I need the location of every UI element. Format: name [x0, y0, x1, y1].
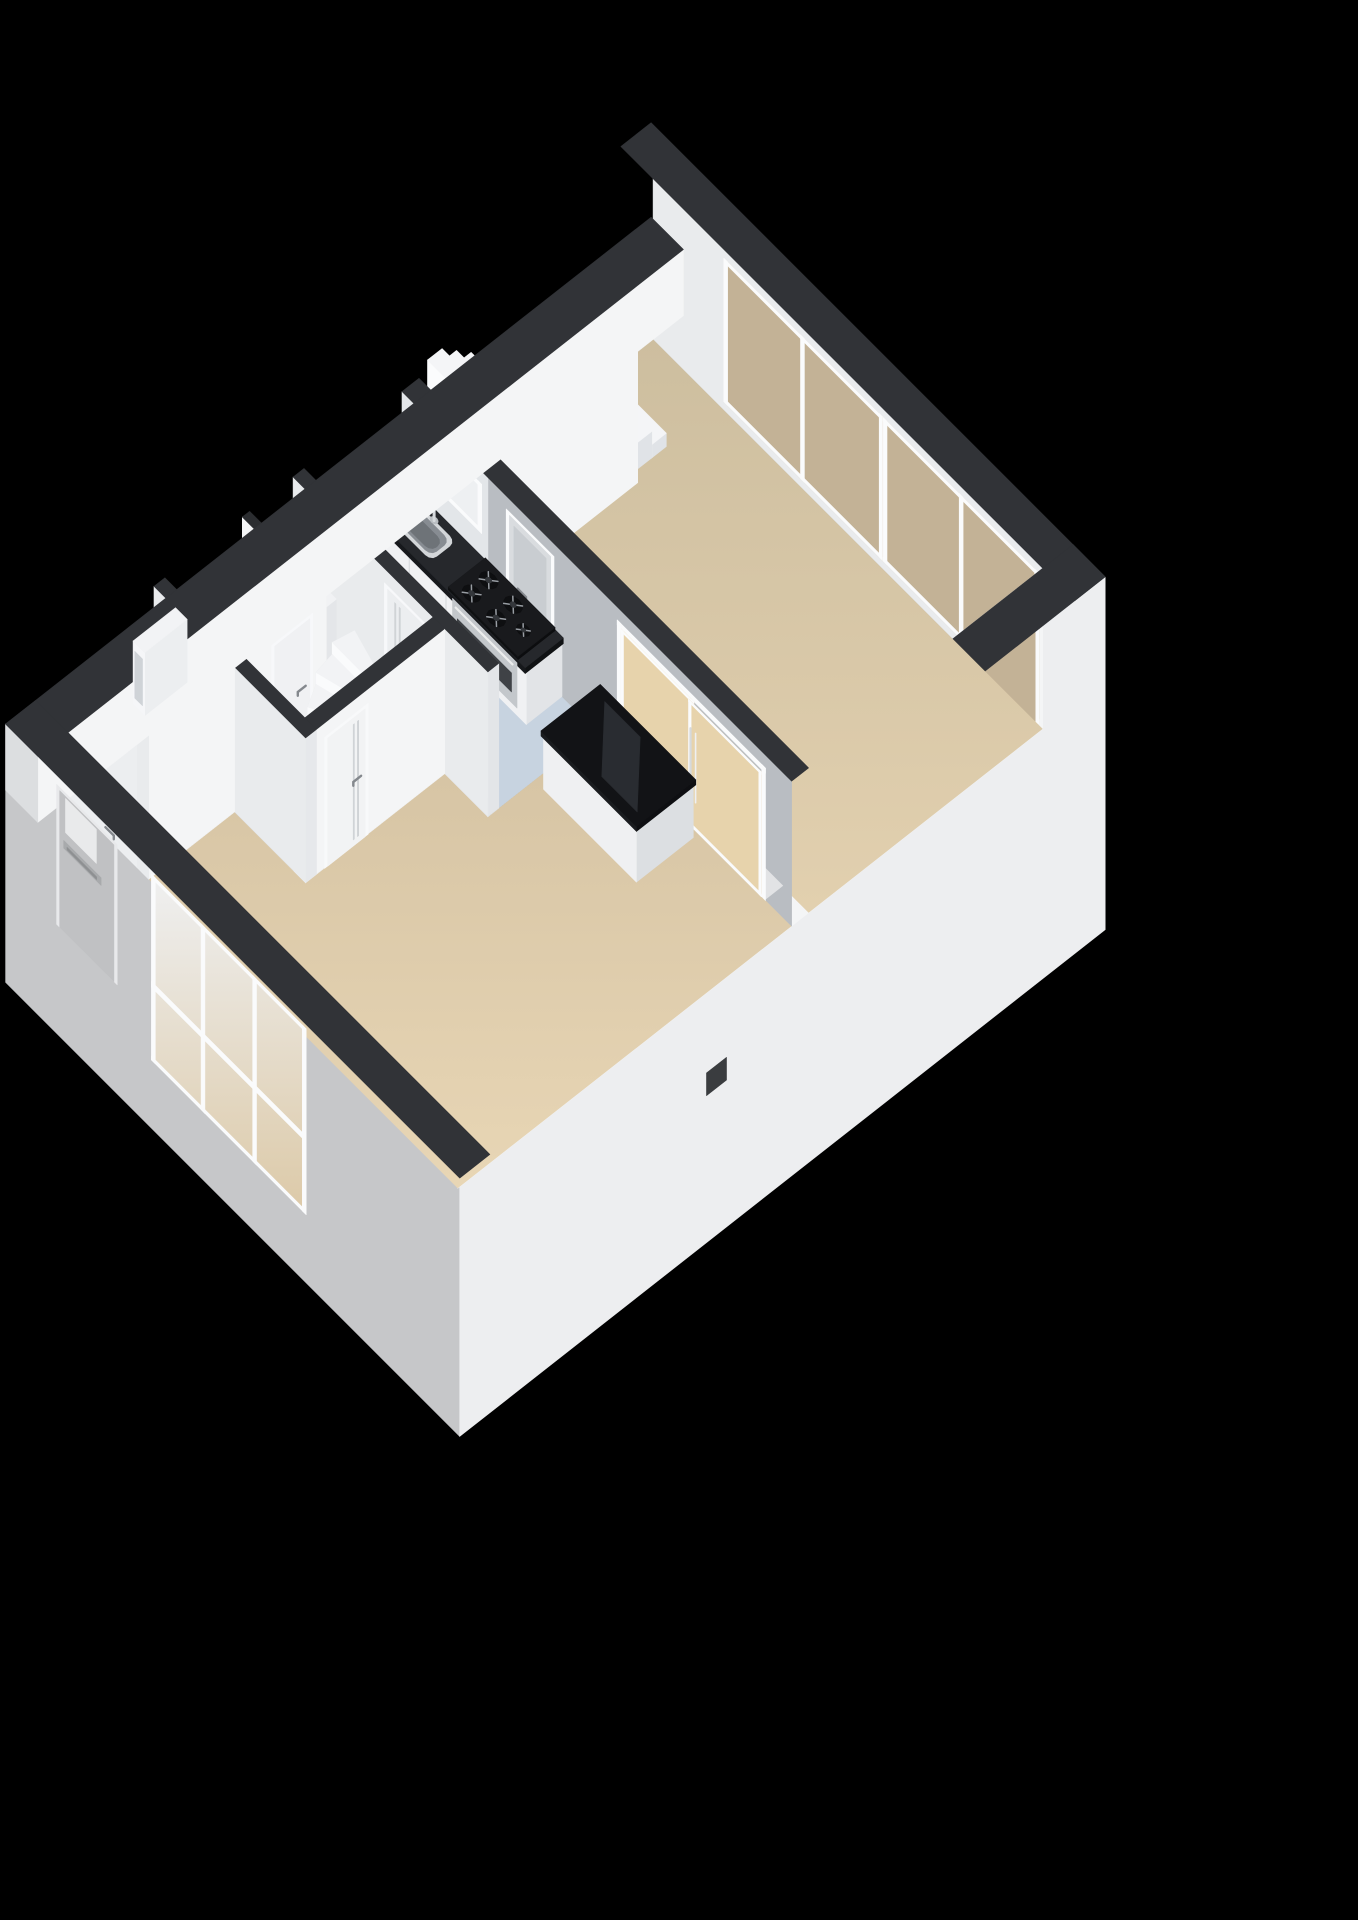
toilet-ext-window-glass [135, 651, 143, 705]
floorplan-3d-canvas [0, 0, 1358, 1920]
floorplan-viewport [0, 0, 1358, 1920]
